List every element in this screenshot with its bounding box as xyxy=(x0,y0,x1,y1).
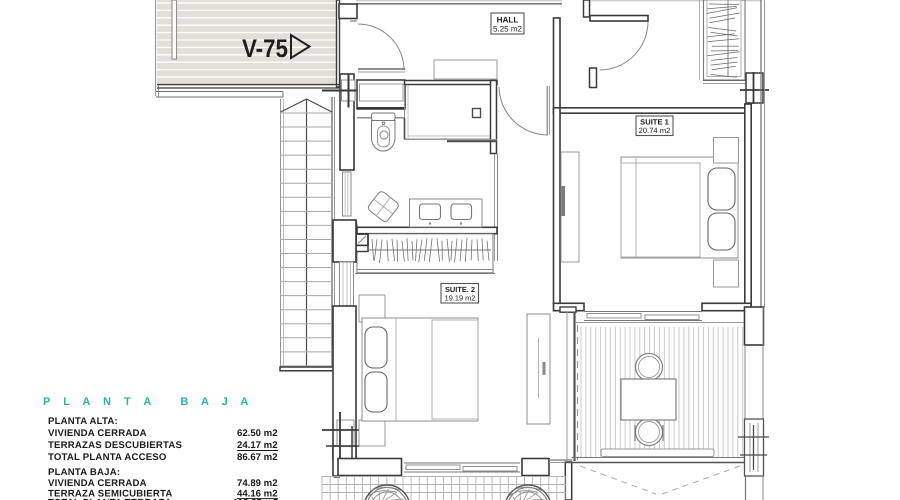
svg-text:20.74 m2: 20.74 m2 xyxy=(639,126,671,135)
svg-text:74.89 m2: 74.89 m2 xyxy=(237,478,278,489)
svg-text:86.67 m2: 86.67 m2 xyxy=(237,452,278,463)
svg-text:TOTAL PLANTA ACCESO: TOTAL PLANTA ACCESO xyxy=(48,452,167,463)
svg-text:V-75: V-75 xyxy=(242,35,288,63)
svg-text:19.19 m2: 19.19 m2 xyxy=(445,294,476,303)
svg-text:HALL: HALL xyxy=(497,16,519,25)
svg-text:PLANTA BAJA:: PLANTA BAJA: xyxy=(48,467,120,478)
svg-text:5.25 m2: 5.25 m2 xyxy=(493,25,522,34)
svg-text:VIVIENDA CERRADA: VIVIENDA CERRADA xyxy=(48,428,147,439)
svg-text:TERRAZAS DESCUBIERTAS: TERRAZAS DESCUBIERTAS xyxy=(48,440,182,451)
svg-text:VIVIENDA CERRADA: VIVIENDA CERRADA xyxy=(48,478,147,489)
svg-text:P L A N T A B A J A: P L A N T A B A J A xyxy=(43,396,253,408)
svg-text:62.50 m2: 62.50 m2 xyxy=(237,428,278,439)
svg-text:PLANTA ALTA:: PLANTA ALTA: xyxy=(48,416,118,427)
svg-text:24.17 m2: 24.17 m2 xyxy=(237,440,278,451)
